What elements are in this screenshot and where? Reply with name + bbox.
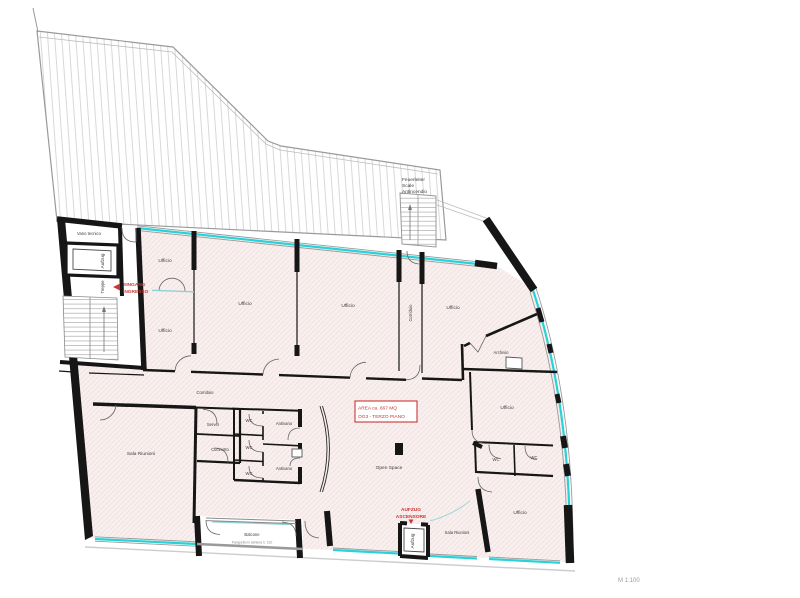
fire-stair-label-3: Antincendio	[402, 189, 427, 195]
area-annotation-box: AREA ca. 667 MQ OG3 - TERZO PIANO	[355, 401, 417, 422]
label-antivano-1: Antivano	[276, 421, 293, 426]
floor-plan-drawing: Feuerleiter Scale Antincendio	[0, 0, 800, 598]
core-stair	[63, 296, 118, 360]
entrance-label-2: INGRESSO	[123, 289, 149, 295]
label-ufficio-4: Ufficio	[341, 303, 355, 309]
fire-stair-label-2: Scale	[402, 183, 414, 189]
label-wc-3: WC	[246, 471, 253, 476]
label-ufficio-2: Ufficio	[158, 328, 172, 334]
archivio-cabinet	[506, 357, 522, 369]
label-ufficio-6: Ufficio	[500, 405, 514, 411]
elevator-top-label: Aufzug	[100, 253, 106, 268]
site-boundary-line	[33, 8, 38, 32]
label-antivano-2: Antivano	[276, 466, 293, 471]
label-ufficio-7: Ufficio	[513, 510, 527, 516]
entrance-label-1: EINGANG	[123, 282, 146, 288]
label-archivio: Archivio	[494, 350, 510, 355]
fire-stair-label-1: Feuerleiter	[402, 177, 425, 183]
label-sala-riunioni-1: Sala Riunioni	[127, 451, 155, 457]
label-server: Server	[207, 422, 220, 427]
elevator-bottom: Aufzug	[400, 523, 428, 558]
parapet-note: Parapetto in lamiera h. 110	[232, 541, 273, 545]
label-treppe: Treppe	[100, 280, 105, 294]
label-corridoio: Corridoio	[197, 390, 215, 395]
structural-column	[395, 443, 403, 455]
area-label-1: AREA ca. 667 MQ	[358, 406, 397, 412]
label-ufficio-3: Ufficio	[238, 301, 252, 307]
elevator-label-1: AUFZUG	[401, 507, 421, 513]
floor-plan-page: Feuerleiter Scale Antincendio	[0, 0, 800, 598]
label-wc-1: WC	[246, 418, 253, 423]
wc-sink	[292, 449, 302, 457]
elevator-label-2: ASCENSORE	[396, 514, 427, 520]
label-vano-tecnico: Vano tecnico	[77, 231, 102, 236]
label-wc-5: WC	[531, 455, 538, 460]
label-cucinotto: Cucinotto	[211, 447, 229, 452]
elevator-top: Aufzug	[66, 243, 118, 277]
label-open-space: Open Space	[376, 465, 403, 471]
area-label-2: OG3 - TERZO PIANO	[358, 414, 405, 420]
elevator-bottom-label: Aufzug	[410, 533, 416, 548]
label-corridoio-vert: Corridoio	[408, 304, 413, 322]
label-wc-4: WC	[493, 457, 500, 462]
label-ufficio-1: Ufficio	[158, 258, 172, 264]
scale-label: M 1:100	[618, 578, 640, 584]
label-ufficio-5: Ufficio	[446, 305, 460, 311]
label-balcone: Balcone	[244, 532, 260, 537]
label-wc-2: WC	[246, 445, 253, 450]
label-sala-riunioni-2: Sala Riunioni	[445, 530, 470, 535]
building-footprint	[57, 219, 571, 562]
